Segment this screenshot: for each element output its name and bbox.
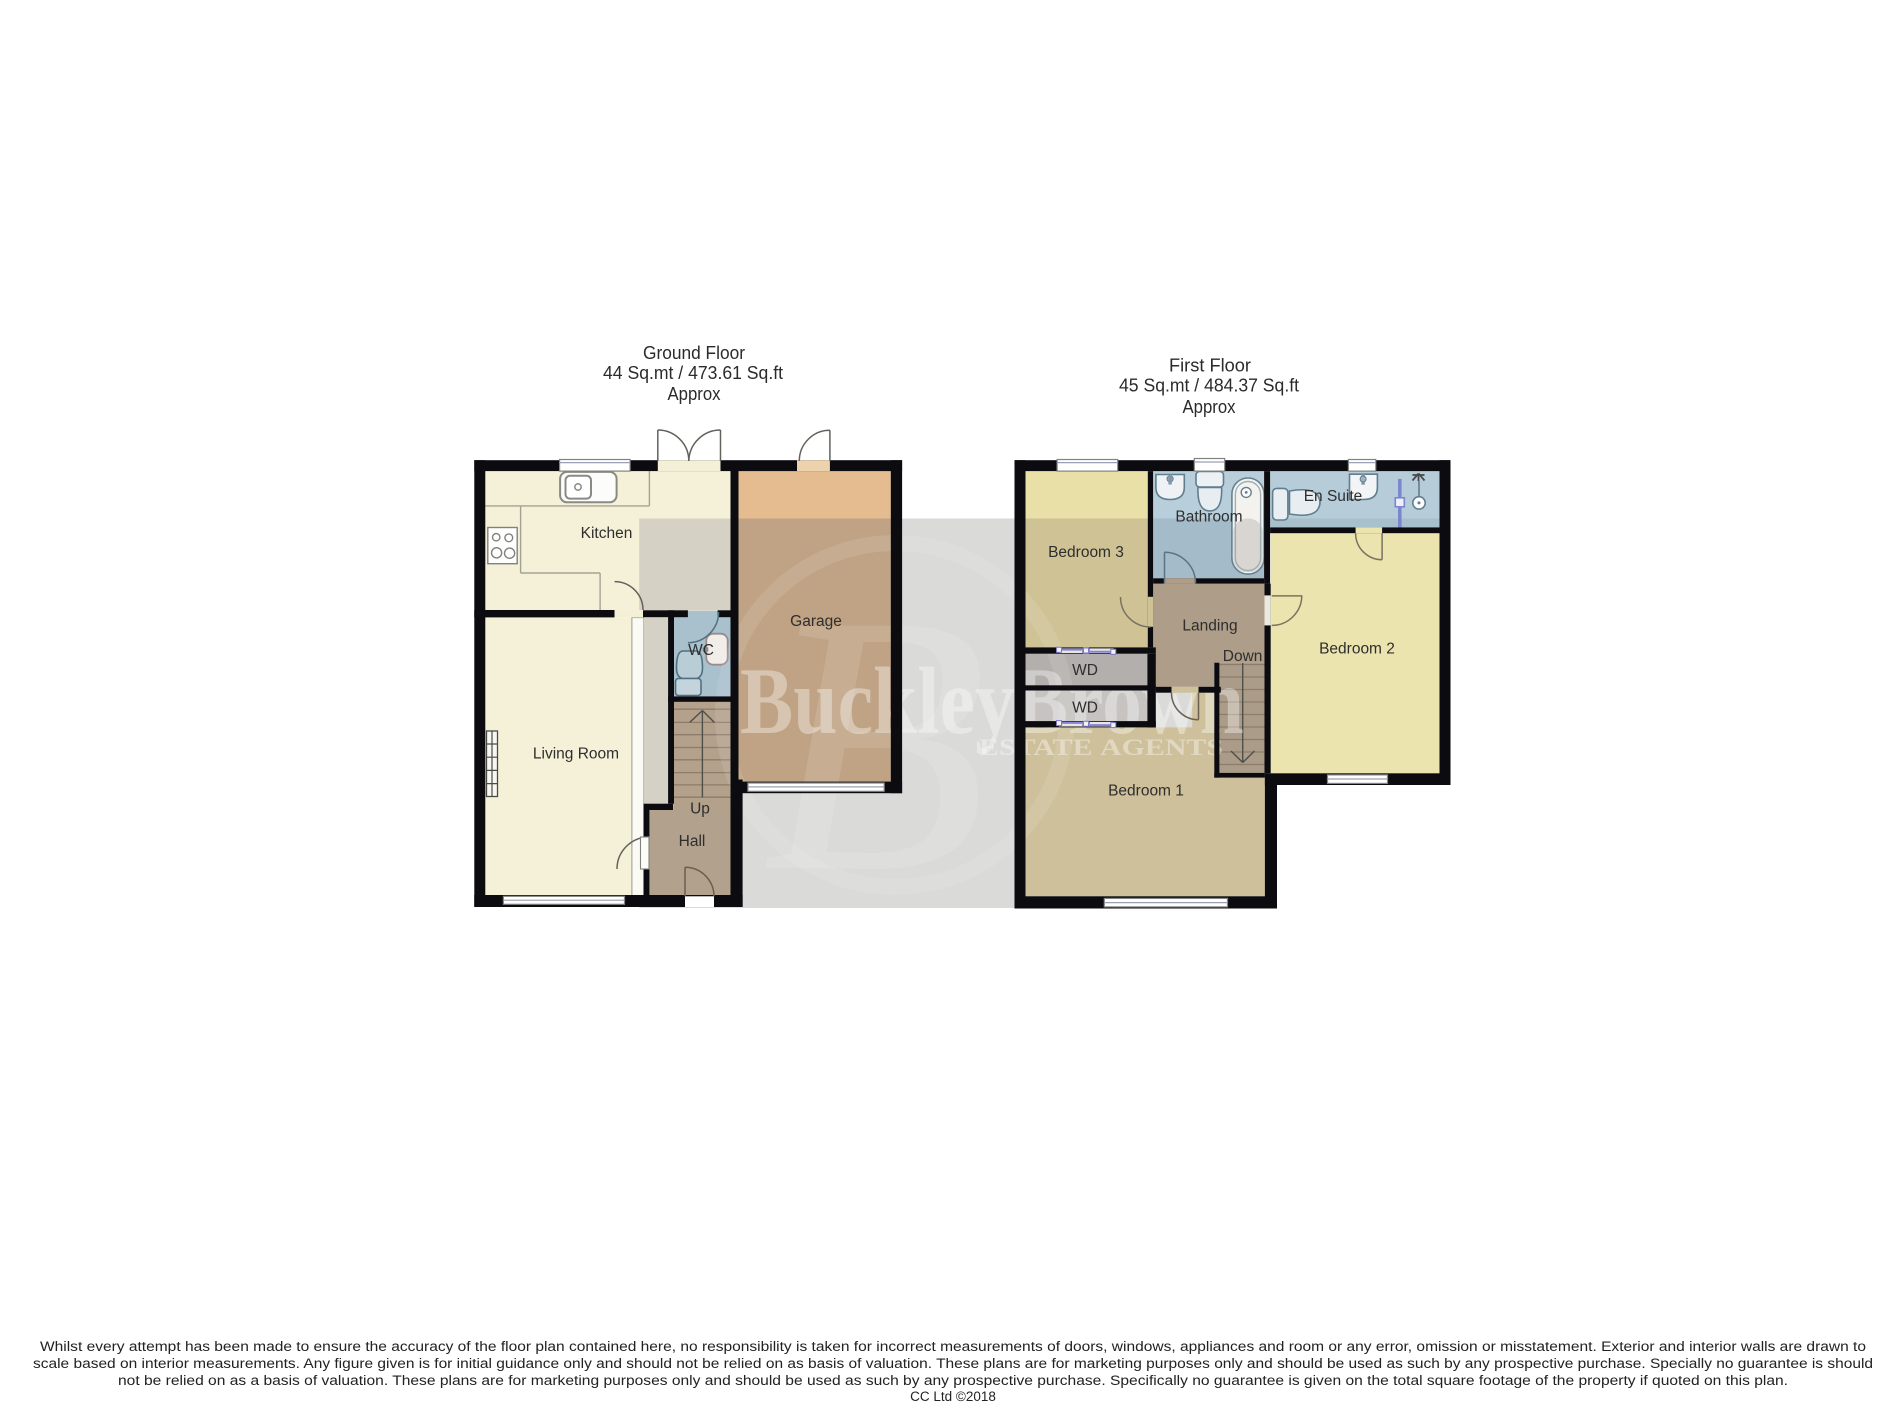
svg-text:CC Ltd ©2018: CC Ltd ©2018 [910,1389,996,1404]
svg-text:not be relied on as a basis of: not be relied on as a basis of valuation… [118,1373,1788,1388]
svg-text:Bathroom: Bathroom [1175,509,1242,526]
svg-text:First Floor: First Floor [1169,354,1251,375]
svg-text:WC: WC [688,642,714,659]
svg-text:Living Room: Living Room [533,746,619,763]
svg-text:Kitchen: Kitchen [581,525,633,542]
svg-text:Up: Up [690,801,710,818]
svg-text:Landing: Landing [1182,618,1237,635]
svg-text:Ground Floor: Ground Floor [643,342,745,363]
svg-text:En Suite: En Suite [1304,488,1363,505]
svg-text:Down: Down [1223,648,1263,665]
svg-text:Approx: Approx [1183,396,1237,417]
svg-text:scale based on interior measur: scale based on interior measurements. An… [33,1356,1873,1371]
svg-text:WD: WD [1072,662,1098,679]
svg-text:Approx: Approx [668,383,722,404]
svg-text:Bedroom 3: Bedroom 3 [1048,544,1124,561]
svg-text:Whilst every attempt has been: Whilst every attempt has been made to en… [40,1339,1866,1354]
svg-text:44 Sq.mt / 473.61 Sq.ft: 44 Sq.mt / 473.61 Sq.ft [603,362,783,383]
svg-text:Bedroom 1: Bedroom 1 [1108,783,1184,800]
svg-text:Garage: Garage [790,613,842,630]
svg-text:45 Sq.mt / 484.37 Sq.ft: 45 Sq.mt / 484.37 Sq.ft [1119,375,1299,396]
svg-text:WD: WD [1072,700,1098,717]
svg-text:Hall: Hall [679,833,706,850]
svg-text:Bedroom 2: Bedroom 2 [1319,641,1395,658]
